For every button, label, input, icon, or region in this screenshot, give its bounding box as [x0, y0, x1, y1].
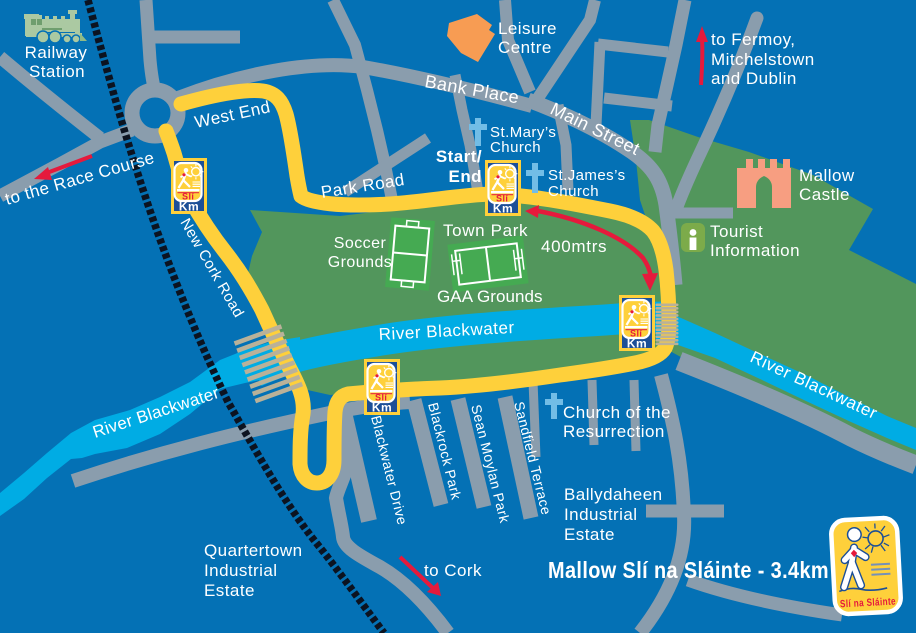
svg-text:Quartertown: Quartertown — [204, 541, 303, 560]
svg-text:GAA Grounds: GAA Grounds — [437, 287, 543, 306]
svg-text:Start/: Start/ — [436, 147, 482, 166]
svg-text:to Cork: to Cork — [424, 561, 482, 580]
svg-text:Church of the: Church of the — [563, 403, 671, 422]
svg-text:Grounds: Grounds — [328, 254, 393, 271]
svg-text:Soccer: Soccer — [334, 235, 387, 252]
svg-text:Ballydaheen: Ballydaheen — [564, 485, 663, 504]
svg-text:St.James’s: St.James’s — [548, 167, 626, 184]
svg-text:Estate: Estate — [204, 581, 255, 600]
svg-text:Leisure: Leisure — [498, 19, 557, 38]
svg-text:Tourist: Tourist — [710, 222, 763, 241]
svg-text:Castle: Castle — [799, 185, 850, 204]
svg-text:Railway: Railway — [25, 43, 88, 62]
svg-text:Resurrection: Resurrection — [563, 422, 665, 441]
svg-text:to Fermoy,: to Fermoy, — [711, 30, 795, 49]
svg-text:Mallow: Mallow — [799, 166, 855, 185]
svg-text:and Dublin: and Dublin — [711, 69, 797, 88]
svg-text:Church: Church — [490, 139, 541, 156]
svg-text:Centre: Centre — [498, 38, 552, 57]
svg-text:Mallow Slí na Sláinte - 3.4km: Mallow Slí na Sláinte - 3.4km — [548, 557, 829, 583]
svg-text:Station: Station — [29, 62, 85, 81]
svg-text:Information: Information — [710, 241, 800, 260]
svg-text:Church: Church — [548, 183, 599, 200]
svg-text:Industrial: Industrial — [204, 561, 277, 580]
svg-text:400mtrs: 400mtrs — [541, 237, 607, 256]
svg-text:End: End — [449, 167, 482, 186]
svg-text:Mitchelstown: Mitchelstown — [711, 50, 815, 69]
svg-text:Industrial: Industrial — [564, 505, 637, 524]
svg-text:Town Park: Town Park — [443, 221, 528, 240]
svg-text:Estate: Estate — [564, 525, 615, 544]
